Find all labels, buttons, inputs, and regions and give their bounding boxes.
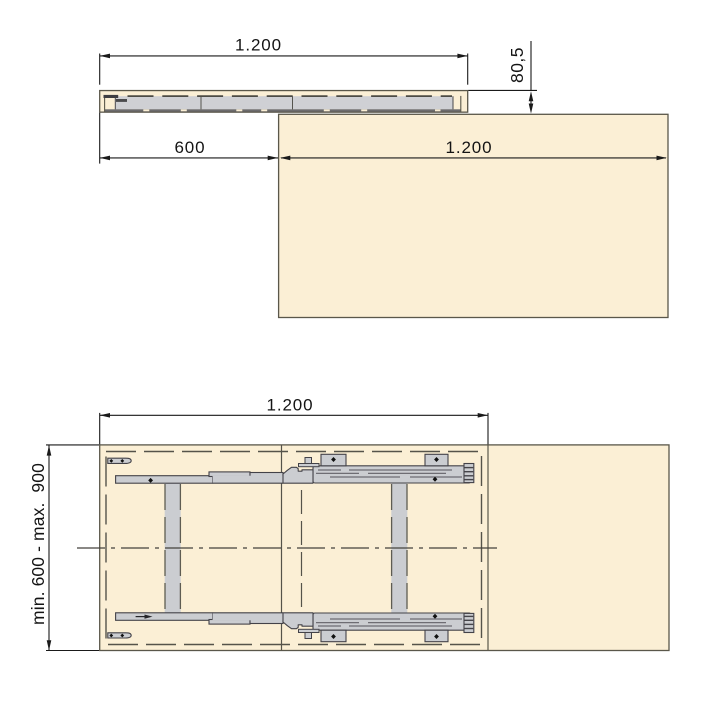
- svg-text:80,5: 80,5: [507, 47, 527, 83]
- svg-text:600: 600: [174, 138, 205, 157]
- svg-text:1.200: 1.200: [235, 36, 282, 55]
- svg-text:min. 600 - max. 900: min. 600 - max. 900: [28, 463, 48, 625]
- svg-text:1.200: 1.200: [266, 395, 313, 414]
- svg-text:1.200: 1.200: [445, 138, 492, 157]
